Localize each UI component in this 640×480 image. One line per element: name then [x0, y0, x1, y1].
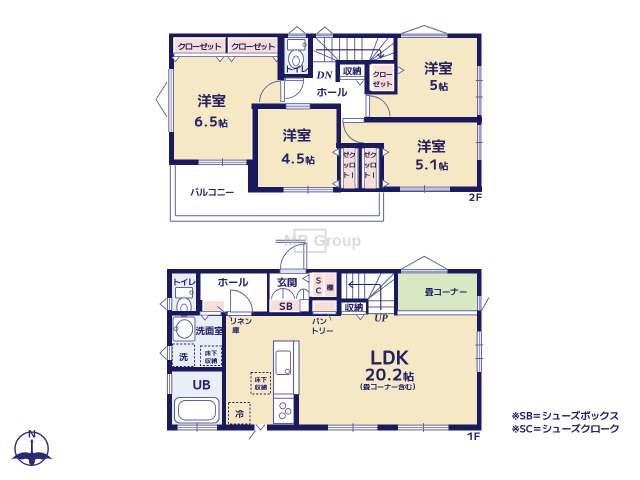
- svg-text:（畳コーナー含む）: （畳コーナー含む）: [356, 383, 419, 393]
- svg-text:ロ: ロ: [370, 160, 377, 170]
- svg-text:ク: ク: [370, 150, 377, 160]
- svg-text:クローゼット: クローゼット: [178, 42, 222, 53]
- svg-text:ト: ト: [343, 170, 350, 180]
- svg-text:ホール: ホール: [317, 84, 348, 99]
- svg-text:トイレ: トイレ: [172, 276, 195, 288]
- svg-text:冷: 冷: [234, 407, 244, 420]
- svg-text:1F: 1F: [467, 428, 480, 443]
- svg-text:DN: DN: [316, 70, 334, 82]
- svg-text:UP: UP: [374, 313, 388, 324]
- svg-text:畳コーナー: 畳コーナー: [425, 286, 467, 298]
- svg-text:ト: ト: [364, 170, 371, 180]
- svg-text:棚: 棚: [326, 283, 334, 293]
- svg-text:収納: 収納: [204, 356, 217, 365]
- svg-text:洋室: 洋室: [197, 90, 226, 111]
- svg-text:MB Group: MB Group: [284, 233, 362, 250]
- svg-text:収納: 収納: [254, 383, 267, 392]
- svg-text:庫: 庫: [232, 325, 240, 336]
- svg-text:トリー: トリー: [311, 326, 333, 337]
- svg-text:収納: 収納: [343, 64, 362, 78]
- svg-text:2F: 2F: [469, 189, 482, 204]
- svg-text:SB: SB: [279, 298, 293, 313]
- svg-text:C: C: [316, 286, 322, 297]
- svg-text:ホール: ホール: [218, 274, 249, 289]
- svg-text:洋室: 洋室: [283, 125, 312, 146]
- svg-text:トイレ: トイレ: [285, 63, 308, 75]
- svg-text:ロ: ロ: [349, 160, 356, 170]
- svg-text:ク: ク: [349, 150, 356, 160]
- svg-text:N: N: [28, 429, 36, 441]
- svg-text:玄関: 玄関: [277, 274, 297, 289]
- svg-text:クローゼット: クローゼット: [231, 42, 275, 53]
- svg-text:ッ: ッ: [364, 160, 371, 170]
- svg-text:ッ: ッ: [343, 160, 350, 170]
- svg-text:※SC＝シューズクローク: ※SC＝シューズクローク: [512, 421, 620, 436]
- svg-text:ゼット: ゼット: [373, 79, 393, 89]
- svg-text:洗: 洗: [179, 350, 188, 363]
- svg-text:クロー: クロー: [373, 69, 393, 79]
- svg-text:バルコニー: バルコニー: [190, 185, 234, 198]
- svg-text:UB: UB: [192, 375, 210, 394]
- svg-text:洗面室: 洗面室: [196, 323, 224, 337]
